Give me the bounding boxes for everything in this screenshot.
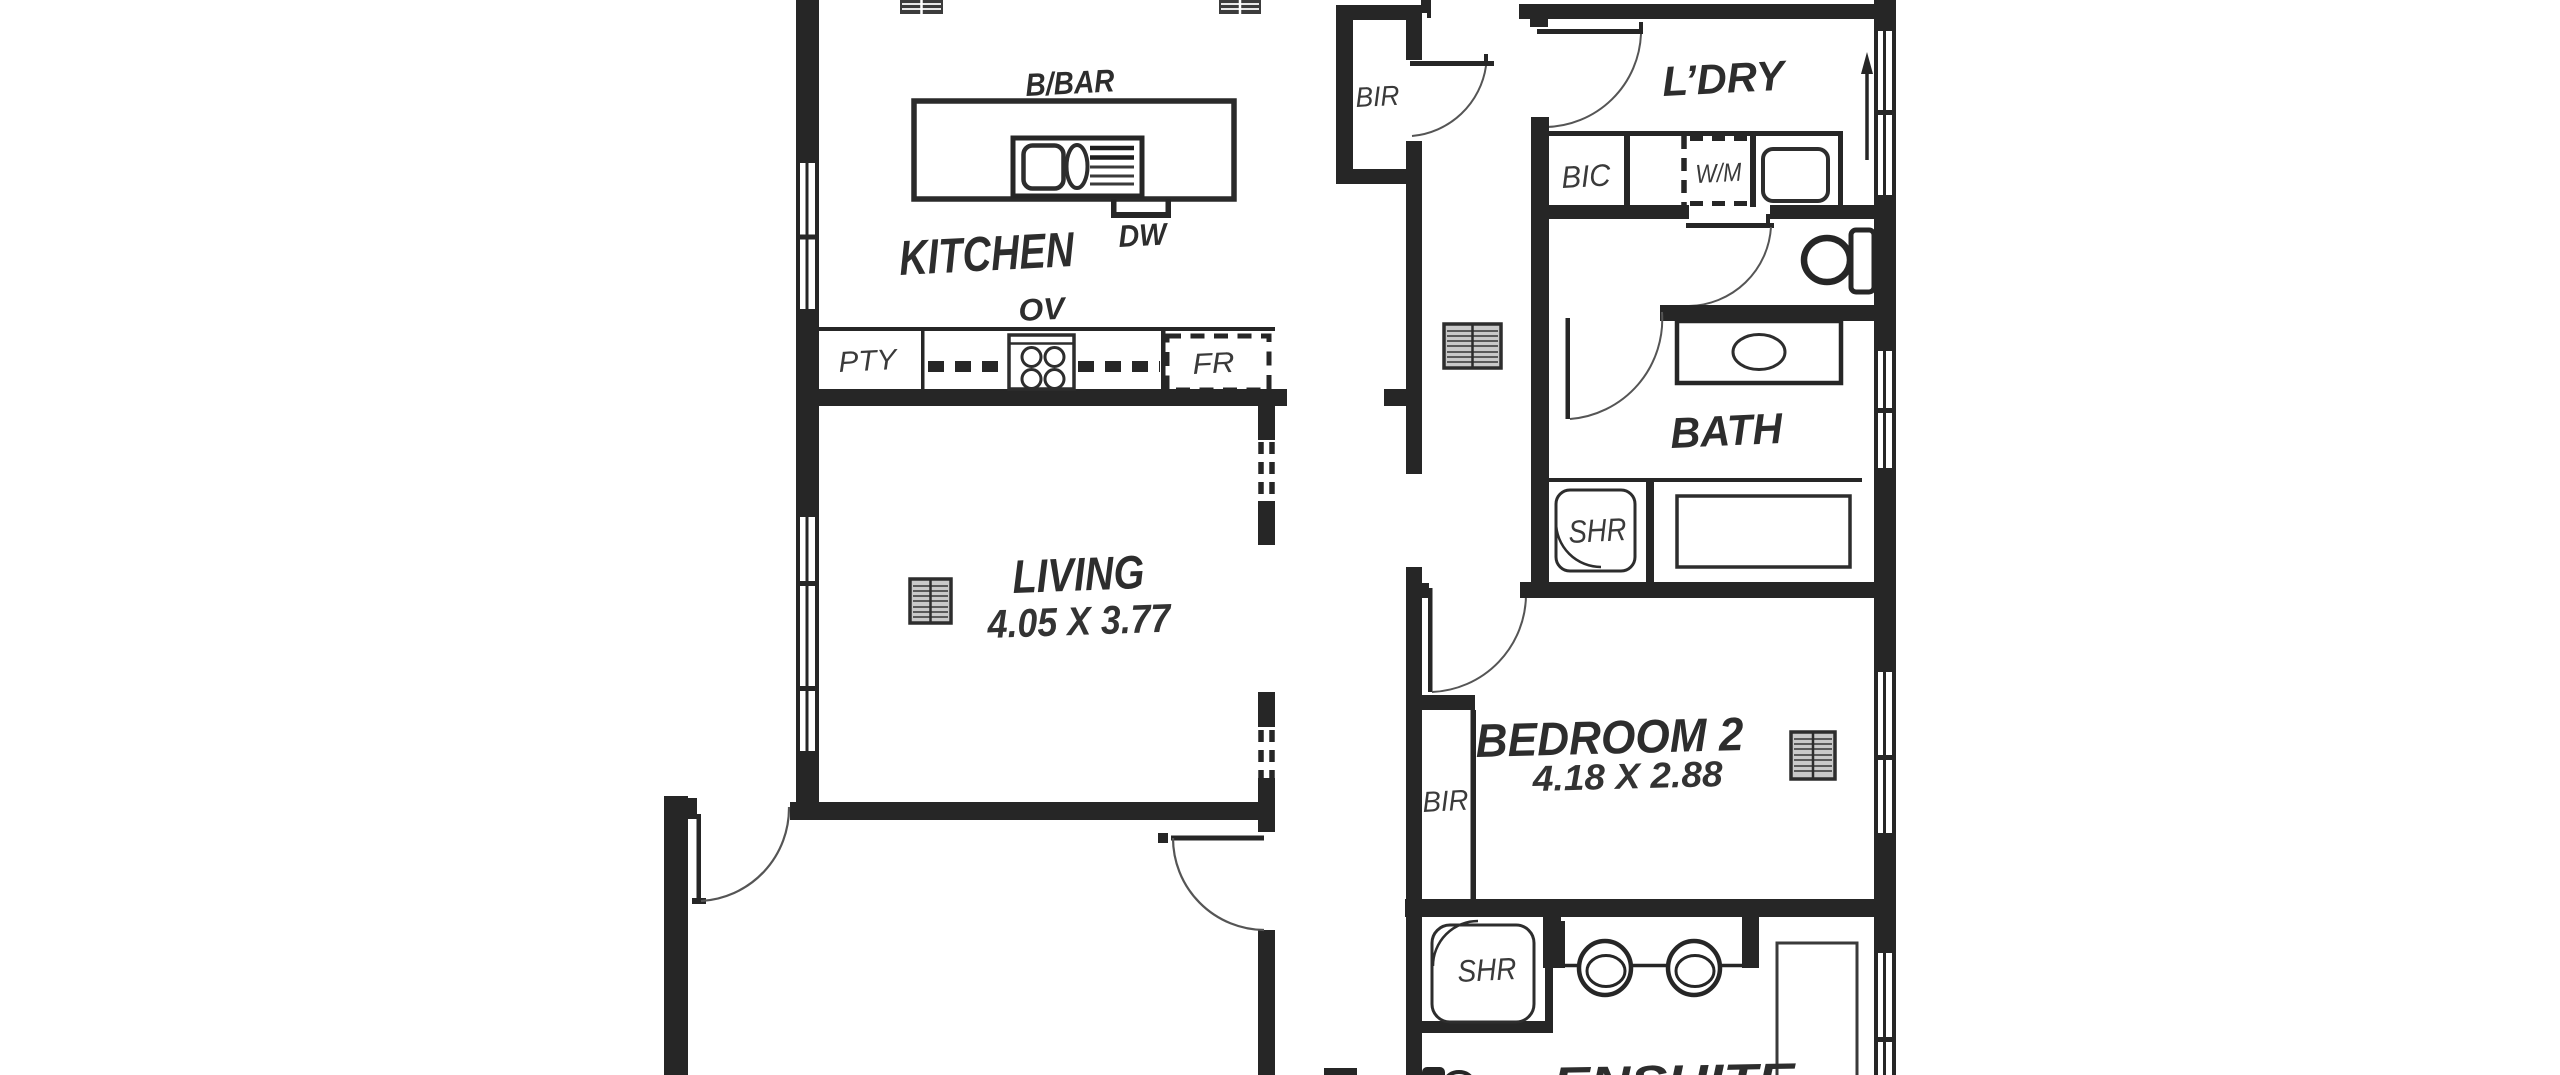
svg-text:4.05 X 3.77: 4.05 X 3.77 bbox=[986, 597, 1173, 647]
svg-text:SHR: SHR bbox=[1457, 951, 1518, 989]
svg-text:BATH: BATH bbox=[1669, 405, 1784, 458]
svg-text:SHR: SHR bbox=[1567, 511, 1627, 550]
svg-text:4.18 X 2.88: 4.18 X 2.88 bbox=[1531, 753, 1723, 799]
svg-text:B/BAR: B/BAR bbox=[1024, 62, 1115, 103]
svg-text:L’DRY: L’DRY bbox=[1661, 51, 1789, 105]
svg-text:FR: FR bbox=[1192, 347, 1236, 381]
svg-text:PTY: PTY bbox=[838, 344, 900, 379]
svg-text:LIVING: LIVING bbox=[1011, 545, 1145, 603]
svg-text:ENSUITE: ENSUITE bbox=[1552, 1053, 1797, 1075]
svg-text:BIR: BIR bbox=[1355, 80, 1401, 113]
svg-text:KITCHEN: KITCHEN bbox=[898, 223, 1077, 286]
svg-text:BIR: BIR bbox=[1422, 785, 1470, 819]
svg-text:DW: DW bbox=[1118, 216, 1170, 254]
svg-text:OV: OV bbox=[1018, 291, 1068, 328]
svg-text:W/M: W/M bbox=[1695, 157, 1743, 189]
svg-text:BIC: BIC bbox=[1561, 157, 1612, 195]
